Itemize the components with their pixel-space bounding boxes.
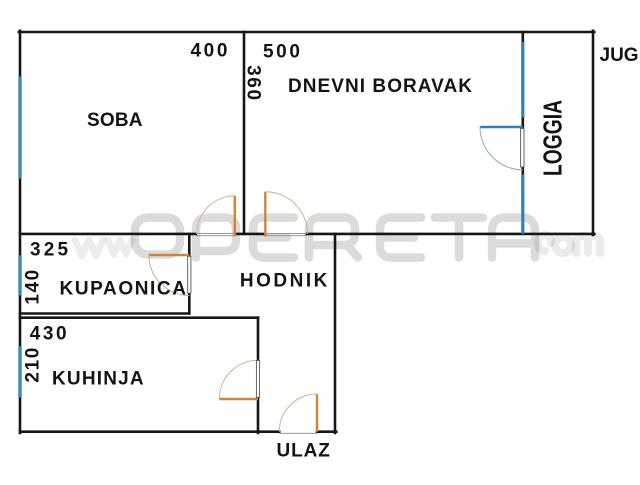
svg-text:360: 360 — [242, 65, 263, 102]
svg-text:JUG: JUG — [600, 45, 639, 66]
svg-text:400: 400 — [191, 40, 231, 61]
svg-text:140: 140 — [23, 268, 44, 305]
svg-text:HODNIK: HODNIK — [240, 271, 330, 292]
svg-text:210: 210 — [23, 346, 44, 383]
svg-text:SOBA: SOBA — [87, 110, 143, 131]
svg-text:KUPAONICA: KUPAONICA — [60, 279, 188, 300]
svg-text:KUHINJA: KUHINJA — [52, 369, 145, 390]
svg-text:500: 500 — [263, 42, 303, 63]
svg-text:430: 430 — [30, 324, 70, 345]
svg-text:LOGGIA: LOGGIA — [538, 100, 568, 176]
svg-text:325: 325 — [30, 239, 71, 260]
svg-text:ULAZ: ULAZ — [277, 441, 331, 462]
svg-text:DNEVNI BORAVAK: DNEVNI BORAVAK — [288, 76, 473, 97]
